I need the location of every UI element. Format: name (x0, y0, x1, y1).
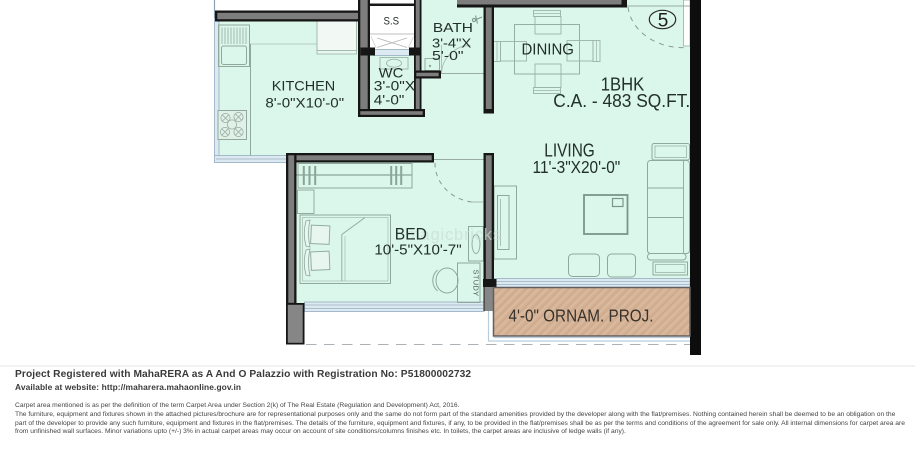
svg-text:8'-0"X10'-0": 8'-0"X10'-0" (265, 96, 344, 111)
svg-text:C.A. - 483 SQ.FT.: C.A. - 483 SQ.FT. (553, 91, 690, 111)
svg-text:S.S: S.S (384, 16, 400, 28)
svg-text:3'-0"X: 3'-0"X (374, 79, 415, 94)
svg-text:5'-0": 5'-0" (432, 48, 464, 63)
svg-text:4'-0": 4'-0" (374, 92, 405, 107)
svg-text:10'-5"X10'-7": 10'-5"X10'-7" (374, 242, 461, 258)
svg-text:11'-3"X20'-0": 11'-3"X20'-0" (533, 157, 621, 177)
svg-text:STUDY: STUDY (472, 270, 481, 297)
svg-text:4'-0" ORNAM. PROJ.: 4'-0" ORNAM. PROJ. (509, 306, 654, 326)
svg-text:BED: BED (395, 225, 427, 243)
svg-text:DINING: DINING (522, 42, 574, 59)
svg-text:BATH: BATH (433, 20, 473, 35)
svg-text:KITCHEN: KITCHEN (272, 79, 335, 94)
svg-text:5: 5 (658, 11, 669, 32)
